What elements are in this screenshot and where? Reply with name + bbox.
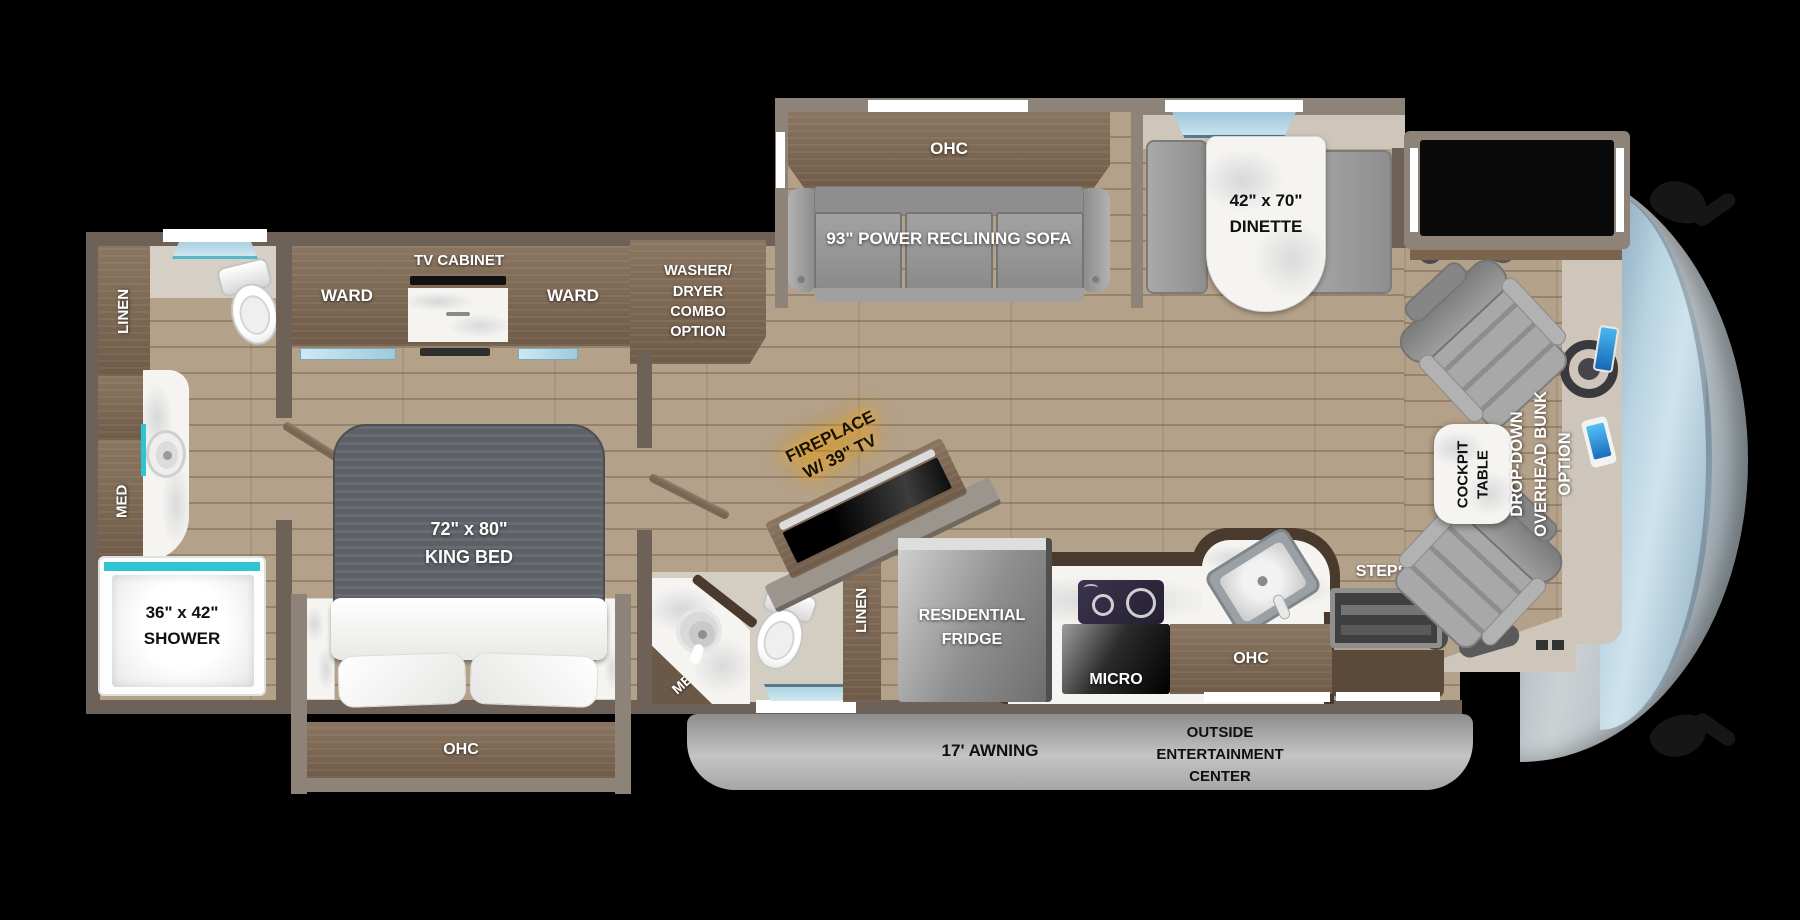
- rear-bath-window: [163, 229, 267, 242]
- micro-label: MICRO: [1062, 670, 1170, 690]
- entry-well: [1332, 650, 1444, 698]
- tv-cabinet-base-strip: [420, 348, 490, 356]
- fridge-top-strip: [898, 538, 1046, 550]
- hall-wall-lower: [637, 530, 652, 702]
- entry-threshold: [1336, 692, 1440, 701]
- bed-slideout-wall-left: [291, 594, 307, 794]
- awning-label: 17' AWNING: [840, 740, 1140, 761]
- ward-left-label: WARD: [321, 285, 373, 306]
- sofa-cushion-3: [996, 212, 1084, 290]
- washer-dryer-cabinet: WASHER/ DRYER COMBO OPTION: [630, 240, 766, 364]
- kitchen-faucet-icon: [1271, 593, 1292, 621]
- front-tv-shelf: [1410, 248, 1622, 260]
- bed-blanket: [331, 598, 607, 660]
- bedroom-tv-screen: [410, 276, 506, 285]
- dinette-bench-left: [1146, 140, 1208, 294]
- bedroom-glass-shelf-right: [518, 348, 578, 360]
- cockpit-table-line1: COCKPIT: [1454, 440, 1474, 508]
- rear-linen-cabinet: LINEN: [98, 246, 150, 376]
- rear-linen-label: LINEN: [115, 289, 134, 334]
- bedroom-glass-shelf-left: [300, 348, 396, 360]
- bath-bedroom-wall-lower: [276, 520, 292, 702]
- shower: 36" x 42" SHOWER: [98, 556, 266, 696]
- bunk-line1: DROP-DOWN: [1506, 314, 1530, 614]
- microwave: MICRO: [1062, 624, 1170, 694]
- rv-floorplan-diagram: 17' AWNING OUTSIDE ENTERTAINMENT CENTER …: [0, 0, 1800, 920]
- rear-med-label: MED: [114, 484, 133, 517]
- kitchen-toe-kick: [1204, 692, 1330, 702]
- oec-line3: CENTER: [1115, 766, 1325, 788]
- bed-name: KING BED: [333, 544, 605, 572]
- dinette-name: DINETTE: [1206, 214, 1326, 240]
- cockpit-table-line2: TABLE: [1473, 440, 1493, 508]
- residential-fridge: RESIDENTIAL FRIDGE: [898, 538, 1052, 702]
- cockpit-table: COCKPIT TABLE: [1434, 424, 1512, 524]
- cockpit-table-label: COCKPIT TABLE: [1454, 440, 1493, 508]
- outside-entertainment-label: OUTSIDE ENTERTAINMENT CENTER: [1115, 722, 1325, 787]
- fridge-line1: RESIDENTIAL: [898, 604, 1046, 628]
- sofa-slideout-window-left: [776, 132, 785, 188]
- fridge-label: RESIDENTIAL FRIDGE: [898, 604, 1046, 652]
- bed-size: 72" x 80": [333, 516, 605, 544]
- mid-sink-faucet-icon: [698, 630, 707, 639]
- kitchen-ohc-cabinet: OHC: [1170, 624, 1332, 694]
- sofa-arm-dot-left: [796, 274, 807, 285]
- oec-line2: ENTERTAINMENT: [1115, 744, 1325, 766]
- shower-label: 36" x 42" SHOWER: [100, 600, 264, 653]
- tv-cabinet-counter: [408, 288, 508, 342]
- rear-vanity-sink: [146, 430, 186, 478]
- mid-bath-window-sill: [764, 684, 848, 701]
- king-bed-label: 72" x 80" KING BED: [333, 516, 605, 572]
- bed-ohc-cabinet: OHC: [307, 722, 615, 778]
- kitchen-ohc-label: OHC: [1233, 649, 1269, 669]
- front-tv-screen: [1420, 140, 1614, 236]
- shower-name: SHOWER: [100, 626, 264, 652]
- tv-cabinet-label: TV CABINET: [402, 252, 516, 271]
- sofa-cushion-2: [905, 212, 993, 290]
- sofa-arm-dot-right: [1090, 274, 1101, 285]
- shower-size: 36" x 42": [100, 600, 264, 626]
- drop-down-bunk-label: DROP-DOWN OVERHEAD BUNK OPTION: [1506, 314, 1590, 614]
- step-tread-2: [1341, 625, 1431, 635]
- dinette-window-sill: [1172, 112, 1296, 138]
- rear-bath-window-sill: [172, 242, 258, 259]
- dinette-label: 42" x 70" DINETTE: [1206, 188, 1326, 239]
- dinette-window: [1165, 100, 1303, 112]
- bed-pillow-right: [469, 652, 599, 708]
- bed-pillow-left: [337, 652, 467, 708]
- bunk-line2: OVERHEAD BUNK: [1530, 314, 1554, 614]
- ward-right-cabinet: WARD: [516, 246, 630, 346]
- dash-button2-icon: [1552, 640, 1564, 650]
- hall-wall-upper: [637, 352, 652, 448]
- ward-left-cabinet: WARD: [292, 246, 402, 346]
- mid-bath-window: [756, 700, 856, 713]
- mid-bath-sink: [676, 608, 722, 654]
- cooktop-burner-small-icon: [1092, 594, 1114, 616]
- cooktop-burner-large-icon: [1126, 588, 1156, 618]
- dash-button1-icon: [1536, 640, 1548, 650]
- tv-cabinet: TV CABINET: [402, 246, 516, 346]
- fridge-line2: FRIDGE: [898, 628, 1046, 652]
- front-tv-notch-right: [1616, 148, 1624, 232]
- oec-line1: OUTSIDE: [1115, 722, 1325, 744]
- dinette-size: 42" x 70": [1206, 188, 1326, 214]
- bed-slideout-wall-bottom: [291, 778, 631, 792]
- rear-sink-faucet-icon: [163, 451, 172, 460]
- sofa-slideout-window: [868, 100, 1028, 112]
- cooktop: [1078, 580, 1164, 624]
- sofa-cushion-1: [814, 212, 902, 290]
- bath-bedroom-wall-upper: [276, 246, 292, 418]
- bunk-line3: OPTION: [1554, 314, 1578, 614]
- ward-right-label: WARD: [547, 285, 599, 306]
- tv-cabinet-handle-icon: [446, 312, 470, 316]
- sofa-label: 93" POWER RECLINING SOFA: [788, 228, 1110, 249]
- sofa-ohc-label: OHC: [788, 138, 1110, 159]
- front-tv-notch-left: [1410, 148, 1418, 232]
- cooktop-vent-icon: [1084, 584, 1098, 591]
- bed-slideout-wall-right: [615, 594, 631, 794]
- mid-linen-label: LINEN: [853, 588, 872, 633]
- washer-dryer-label: WASHER/ DRYER COMBO OPTION: [664, 261, 732, 342]
- sofa-front-lip: [814, 288, 1084, 302]
- shower-teal-strip: [104, 562, 260, 571]
- bed-ohc-label: OHC: [443, 740, 479, 760]
